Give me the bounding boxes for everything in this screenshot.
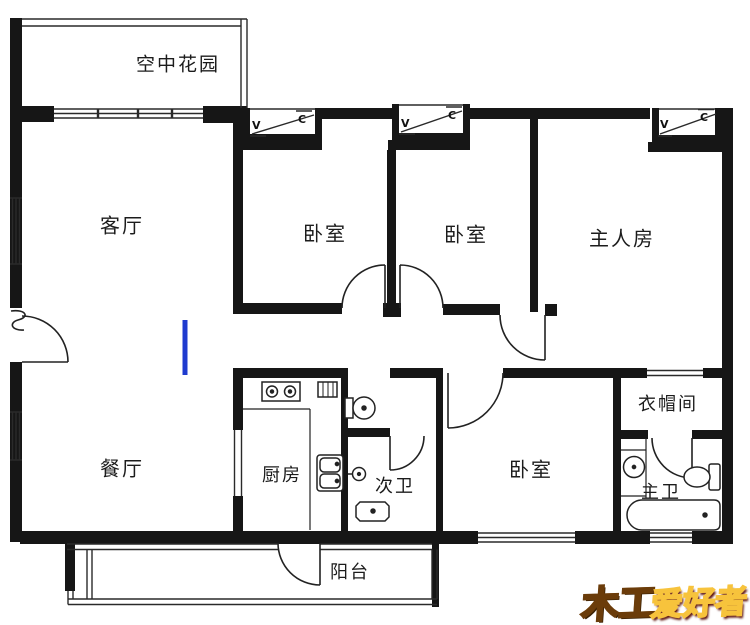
- watermark-logo: 木工爱好者: [580, 581, 748, 624]
- floorplan-canvas: 空中花园 客厅 卧室 卧室 主人房 餐厅 厨房 次卫 卧室 衣帽间 主卫 阳台 …: [0, 0, 750, 625]
- kitchen-sink-icon: [317, 455, 343, 491]
- master-bath-toilet-icon: [684, 464, 720, 490]
- kitchen-hatch-icon: [318, 382, 337, 397]
- floorplan-drawing: [0, 0, 750, 625]
- bedroom1-door: [342, 265, 385, 308]
- ac2-letter-right: C: [448, 109, 456, 122]
- second-bath-basin-icon: [348, 468, 366, 481]
- watermark-part1: 木工: [580, 581, 657, 625]
- label-master-bath: 主卫: [641, 478, 681, 504]
- label-cloakroom: 衣帽间: [638, 390, 698, 416]
- label-second-bath: 次卫: [375, 472, 415, 498]
- bedroom2-door: [400, 265, 443, 308]
- label-master-room: 主人房: [589, 223, 655, 252]
- bedroom3-door: [448, 373, 503, 428]
- label-dining-room: 餐厅: [100, 453, 144, 482]
- ac3-letter-left: V: [660, 118, 669, 131]
- ac3-letter-right: C: [700, 111, 708, 124]
- master-door: [500, 315, 545, 360]
- ac1-letter-left: V: [252, 119, 261, 132]
- label-balcony: 阳台: [330, 558, 370, 584]
- second-bath-tub-icon: [356, 502, 389, 521]
- label-kitchen: 厨房: [262, 461, 302, 487]
- ac1-letter-right: C: [298, 113, 306, 126]
- watermark-part2: 爱好者: [650, 582, 749, 623]
- label-bedroom-1: 卧室: [303, 218, 347, 247]
- balcony-door: [278, 543, 320, 585]
- entry-door-swing-mark: [11, 311, 25, 330]
- label-living-room: 客厅: [100, 210, 144, 239]
- master-bath-tub-icon: [627, 500, 720, 530]
- label-sky-garden: 空中花园: [136, 50, 220, 77]
- stove-icon: [262, 382, 300, 401]
- label-bedroom-3: 卧室: [509, 454, 553, 483]
- second-bath-door: [390, 436, 424, 470]
- ac2-letter-left: V: [401, 117, 410, 130]
- entry-door: [22, 316, 68, 362]
- second-bath-toilet-icon: [345, 397, 375, 419]
- label-bedroom-2: 卧室: [444, 219, 488, 248]
